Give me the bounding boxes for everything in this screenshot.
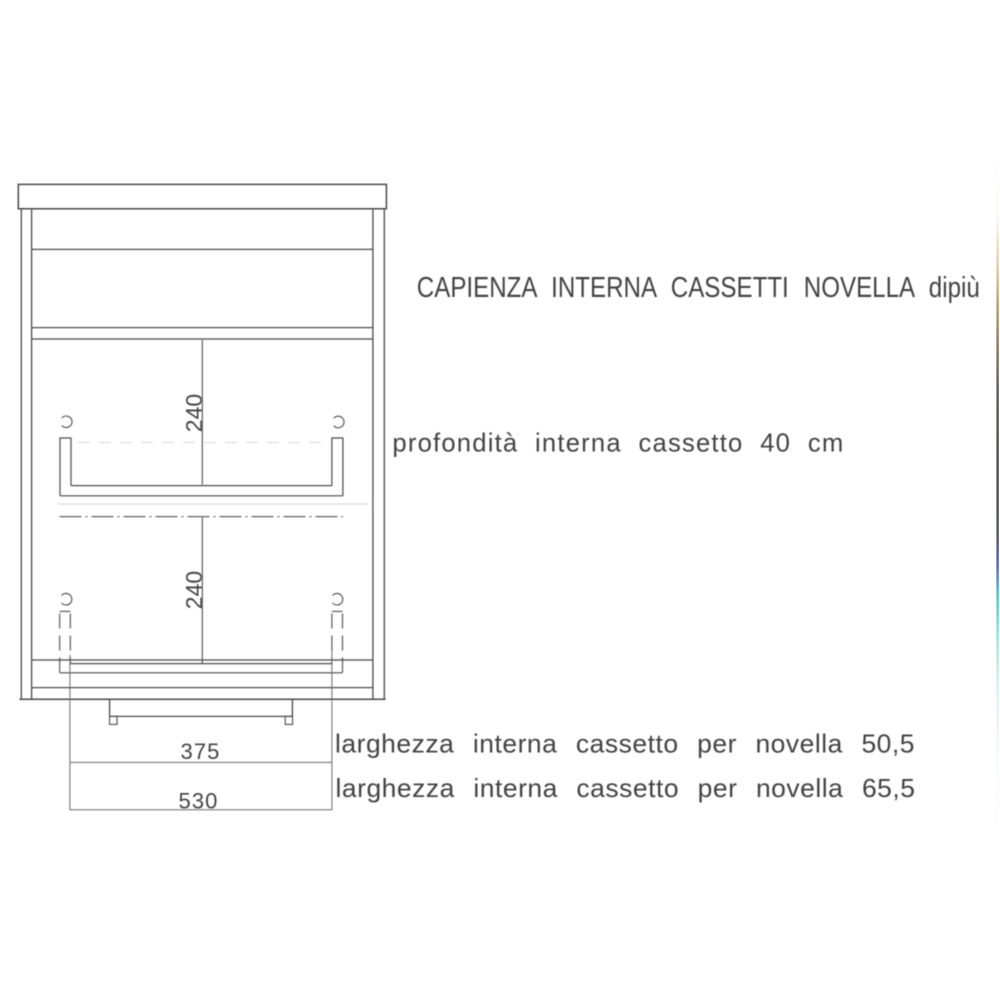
svg-text:375: 375	[180, 739, 220, 764]
svg-text:profondità interna cassetto 40: profondità interna cassetto 40 cm	[392, 428, 844, 458]
svg-text:larghezza interna cassetto per: larghezza interna cassetto per novella 6…	[336, 773, 916, 803]
svg-text:240: 240	[181, 394, 207, 432]
svg-text:CAPIENZA INTERNA CASSETTI NOVE: CAPIENZA INTERNA CASSETTI NOVELLA dipiù	[417, 272, 980, 304]
svg-text:240: 240	[181, 571, 207, 609]
svg-text:larghezza interna cassetto per: larghezza interna cassetto per novella 5…	[335, 729, 915, 759]
svg-text:530: 530	[178, 789, 218, 814]
